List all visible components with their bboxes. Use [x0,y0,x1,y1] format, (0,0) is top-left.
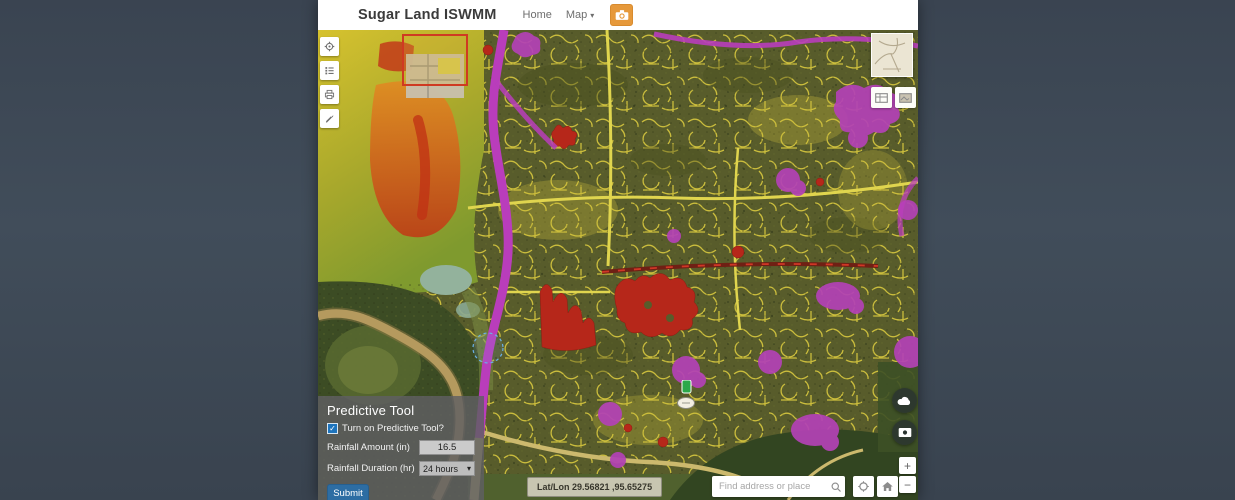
predictive-tool-title: Predictive Tool [327,403,475,418]
locate-button[interactable] [853,476,874,497]
imagery-map-icon [899,93,912,103]
rainfall-amount-label: Rainfall Amount (in) [327,442,410,453]
zoom-out-button[interactable]: − [899,476,916,493]
turn-on-label: Turn on Predictive Tool? [342,423,444,434]
turn-on-checkbox[interactable]: ✓ [327,423,338,434]
chevron-down-icon: ▾ [590,11,594,20]
home-icon [881,480,894,493]
search-icon [830,481,842,493]
zoom-control: + − [899,457,916,493]
basemap-street-button[interactable] [871,87,892,108]
home-extent-button[interactable] [877,476,898,497]
app-window: Sugar Land ISWMM Home Map▾ [318,0,918,500]
basemap-toggle-group [871,87,916,108]
camera-icon [615,9,629,21]
printer-icon [323,88,336,101]
weather-layer-button[interactable] [892,388,917,413]
rainfall-amount-input[interactable] [419,440,475,455]
legend-list-icon [323,64,336,77]
main-nav: Home Map▾ [523,9,595,21]
submit-button[interactable]: Submit [327,484,369,500]
cloud-icon [897,395,912,406]
draw-measure-button[interactable] [320,109,339,128]
search-submit[interactable] [827,478,845,496]
streetview-photo-button[interactable] [892,420,917,445]
green-marker-icon[interactable] [682,380,691,393]
rainfall-duration-label: Rainfall Duration (hr) [327,463,415,474]
pencil-icon [323,112,336,125]
rainfall-duration-select[interactable]: 24 hours ▾ [419,461,475,476]
page-title: Sugar Land ISWMM [358,7,497,23]
zoom-in-button[interactable]: + [899,457,916,474]
map-marker-group [675,380,697,410]
search-input[interactable] [712,481,827,492]
map-tools-toolbar [320,37,339,128]
street-map-icon [875,93,888,103]
predictive-tool-panel: Predictive Tool ✓ Turn on Predictive Too… [318,396,484,500]
print-button[interactable] [320,85,339,104]
basemap-imagery-button[interactable] [895,87,916,108]
legend-button[interactable] [320,61,339,80]
locate-icon [857,480,870,493]
photo-icon [898,427,912,438]
layers-button[interactable] [320,37,339,56]
nav-map-menu[interactable]: Map▾ [566,9,594,21]
overview-map-streets [872,34,910,74]
desktop-background: Sugar Land ISWMM Home Map▾ [0,0,1235,500]
gear-icon [323,40,336,53]
app-header: Sugar Land ISWMM Home Map▾ [318,0,918,31]
open-fields-layer [318,30,484,293]
overview-map-inset[interactable] [871,33,913,77]
screenshot-camera-button[interactable] [610,4,633,26]
nav-home[interactable]: Home [523,9,552,21]
latlon-readout: Lat/Lon 29.56821 ,95.65275 [527,477,662,497]
selection-circle [473,333,503,363]
address-search [712,476,845,497]
chevron-down-icon: ▾ [467,464,471,473]
rainfall-duration-value: 24 hours [423,464,458,474]
map-viewport[interactable]: + − [318,30,918,500]
